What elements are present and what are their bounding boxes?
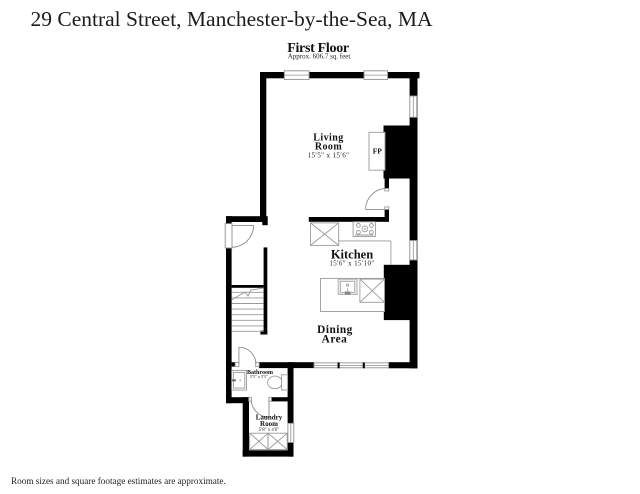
svg-text:15′5″ x 15′6″: 15′5″ x 15′6″ bbox=[308, 151, 350, 159]
svg-text:29 Central Street, Manchester-: 29 Central Street, Manchester-by-the-Sea… bbox=[31, 7, 433, 31]
svg-text:5′5″ x 5′5″: 5′5″ x 5′5″ bbox=[250, 374, 268, 379]
svg-text:Room sizes and square footage: Room sizes and square footage estimates … bbox=[11, 476, 226, 486]
svg-text:5′8″ x 4′6″: 5′8″ x 4′6″ bbox=[259, 428, 280, 433]
svg-text:Area: Area bbox=[322, 334, 348, 346]
svg-text:FP: FP bbox=[373, 146, 383, 155]
svg-text:Room: Room bbox=[260, 420, 278, 428]
svg-text:15′6″ x 15′10″: 15′6″ x 15′10″ bbox=[329, 260, 374, 268]
svg-text:Approx. 606.7 sq. feet: Approx. 606.7 sq. feet bbox=[288, 53, 351, 61]
